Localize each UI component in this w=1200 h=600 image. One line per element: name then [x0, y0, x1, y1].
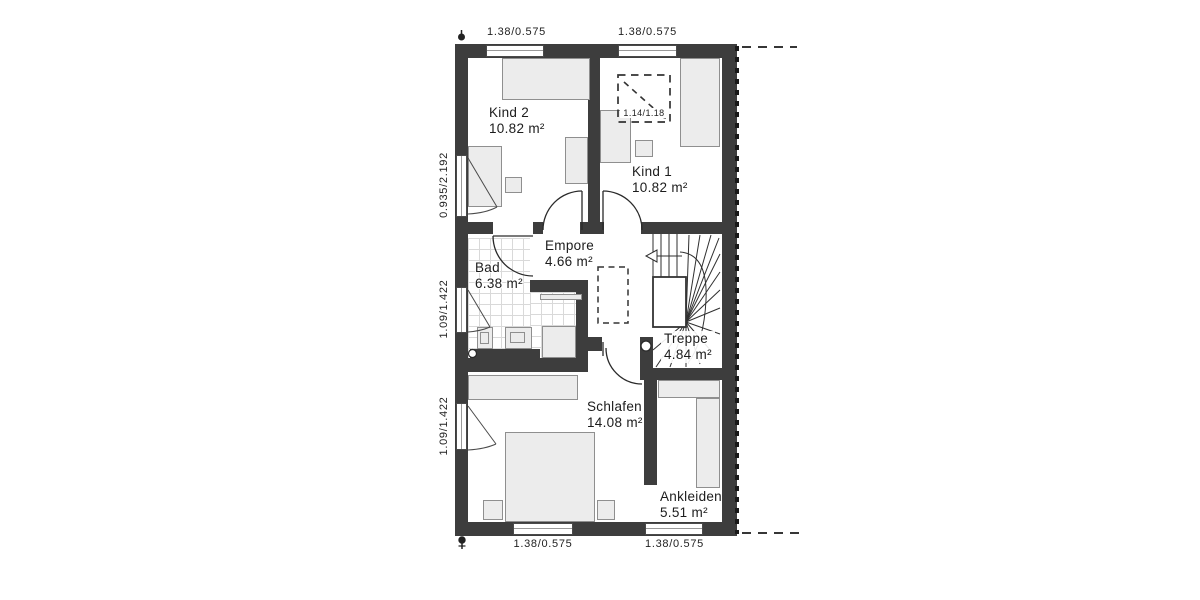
room-label-kind-2: Kind 2 10.82 m²	[489, 105, 545, 137]
room-label-empore: Empore 4.66 m²	[545, 238, 594, 270]
window-left-bath	[456, 287, 467, 333]
room-area: 6.38 m²	[475, 276, 523, 292]
room-label-kind-1: Kind 1 10.82 m²	[632, 164, 688, 196]
radiator	[470, 349, 540, 358]
room-name: Empore	[545, 238, 594, 254]
dimension-top-window-left: 1.38/0.575	[487, 26, 545, 38]
reference-marker-icon	[459, 30, 465, 40]
bathroom-shelf	[540, 294, 582, 300]
door-arc-bedroom	[606, 348, 642, 384]
room-label-ankleiden: Ankleiden 5.51 m²	[660, 489, 722, 521]
exterior-wall-right-party-wall	[722, 44, 737, 536]
nightstand	[483, 500, 503, 520]
room-name: Kind 1	[632, 164, 688, 180]
room-area: 5.51 m²	[660, 505, 722, 521]
bed	[468, 146, 502, 207]
window-top-left	[486, 45, 544, 57]
window-bottom-left	[513, 523, 573, 535]
interior-wall-bedroom-dressing	[644, 380, 657, 485]
interior-wall-bath-bedroom	[468, 358, 588, 372]
wardrobe	[468, 375, 578, 400]
dimension-left-window-middle: 1.09/1.422	[438, 264, 450, 354]
dimension-roof-window: 1.14/1.18	[620, 108, 668, 118]
room-name: Kind 2	[489, 105, 545, 121]
door-arc-child2	[543, 191, 582, 230]
washbasin-sink	[510, 332, 525, 343]
empore-dashed-outline	[598, 267, 628, 323]
double-bed	[505, 432, 595, 522]
dimension-bottom-window-right: 1.38/0.575	[645, 538, 703, 550]
interior-wall	[468, 222, 493, 234]
reference-marker-icon	[459, 537, 466, 549]
window-top-right	[618, 45, 677, 57]
room-area: 4.84 m²	[664, 347, 712, 363]
room-name: Bad	[475, 260, 523, 276]
window-swing-line	[468, 406, 496, 444]
dimension-bottom-window-left: 1.38/0.575	[513, 538, 573, 550]
room-name: Schlafen	[587, 399, 643, 415]
dimension-left-window-lower: 1.09/1.422	[438, 381, 450, 471]
room-label-treppe: Treppe 4.84 m²	[661, 331, 715, 363]
interior-wall-stair-dressing	[640, 368, 722, 380]
room-name: Ankleiden	[660, 489, 722, 505]
stair-void	[653, 277, 686, 327]
window-left-child2	[456, 155, 467, 217]
window-bottom-right	[645, 523, 703, 535]
floor-plan-canvas: Kind 2 10.82 m² Kind 1 10.82 m² Empore 4…	[0, 0, 1200, 600]
toilet	[477, 327, 493, 349]
wardrobe	[502, 58, 590, 100]
nightstand	[505, 177, 522, 193]
room-name: Treppe	[664, 331, 712, 347]
nightstand	[635, 140, 653, 157]
desk	[565, 137, 588, 184]
wardrobe	[680, 58, 720, 147]
room-area: 10.82 m²	[632, 180, 688, 196]
dimension-left-window-upper: 0.935/2.192	[438, 140, 450, 230]
room-label-bad: Bad 6.38 m²	[475, 260, 523, 292]
room-area: 10.82 m²	[489, 121, 545, 137]
interior-wall-bath	[530, 280, 588, 292]
interior-wall	[641, 222, 722, 234]
room-area: 14.08 m²	[587, 415, 643, 431]
stair-direction-arrow-icon	[646, 250, 657, 262]
window-left-bedroom	[456, 403, 467, 450]
toilet-bowl	[480, 332, 489, 344]
window-swing-arc	[468, 444, 496, 450]
interior-wall	[533, 222, 543, 234]
wardrobe	[658, 380, 720, 398]
door-arc-child1	[603, 191, 642, 230]
dimension-top-window-right: 1.38/0.575	[618, 26, 677, 38]
room-area: 4.66 m²	[545, 254, 594, 270]
wardrobe	[696, 398, 720, 488]
room-label-schlafen: Schlafen 14.08 m²	[587, 399, 643, 431]
shower	[542, 326, 576, 358]
window-swing-arc	[468, 207, 497, 214]
washbasin	[505, 327, 532, 349]
nightstand	[597, 500, 615, 520]
interior-wall-stub	[586, 337, 602, 351]
